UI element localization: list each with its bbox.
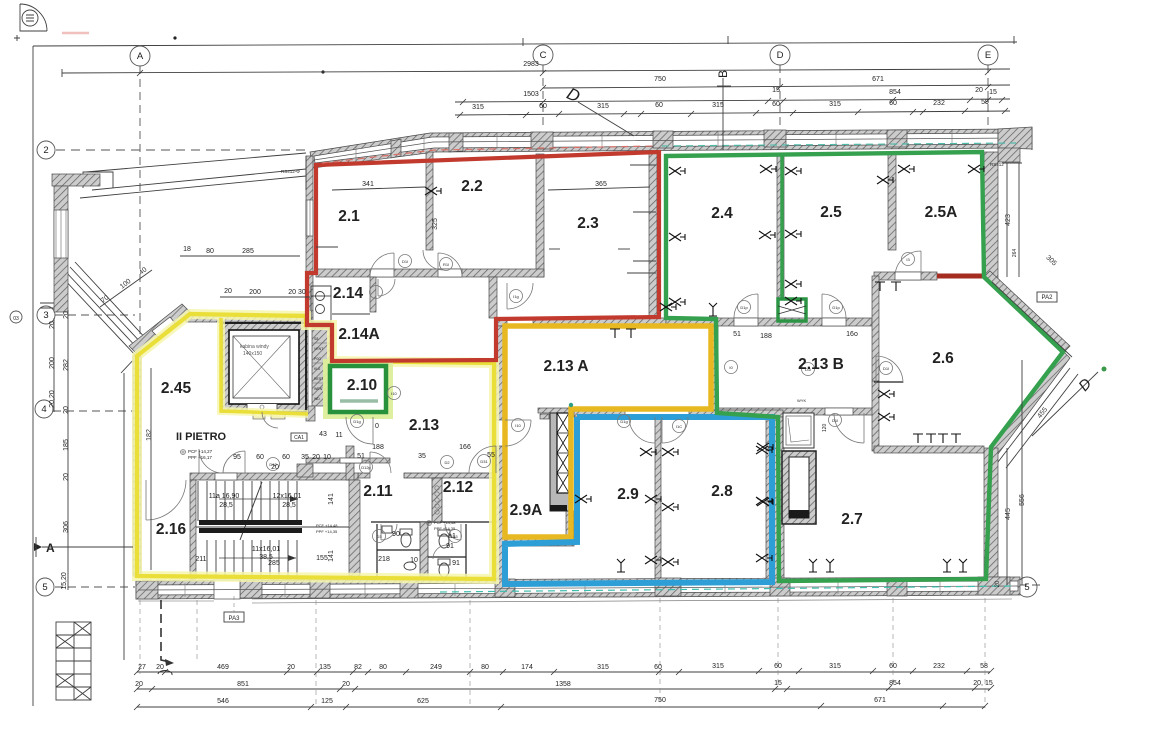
svg-text:15: 15 [774, 680, 782, 687]
svg-text:S8: S8 [314, 337, 318, 341]
svg-text:232: 232 [933, 663, 945, 670]
svg-text:2.45: 2.45 [161, 380, 192, 397]
svg-text:03: 03 [13, 316, 19, 322]
svg-text:60: 60 [539, 103, 547, 110]
svg-text:RS412-Φ: RS412-Φ [281, 169, 300, 174]
svg-text:2.14: 2.14 [333, 285, 364, 302]
svg-text:60: 60 [654, 664, 662, 671]
svg-text:KL0: KL0 [314, 367, 320, 371]
svg-text:D3: D3 [376, 534, 382, 539]
svg-text:2.16: 2.16 [156, 521, 187, 538]
svg-text:11a 16,90: 11a 16,90 [209, 493, 240, 500]
svg-text:18: 18 [183, 246, 191, 253]
svg-text:I10: I10 [515, 423, 521, 428]
svg-text:188: 188 [372, 444, 384, 451]
svg-text:285: 285 [268, 560, 280, 567]
svg-text:D12p: D12p [361, 465, 371, 470]
svg-text:750: 750 [654, 76, 666, 83]
svg-text:188: 188 [760, 333, 772, 340]
svg-text:141: 141 [328, 493, 335, 505]
svg-text:249: 249 [430, 664, 442, 671]
svg-text:60: 60 [282, 454, 290, 461]
svg-text:15: 15 [989, 89, 997, 96]
svg-text:120: 120 [822, 423, 828, 432]
svg-text:VENT: VENT [314, 347, 324, 351]
svg-text:455: 455 [1036, 406, 1049, 420]
svg-text:20 30: 20 30 [288, 289, 306, 296]
svg-text:155: 155 [316, 555, 328, 562]
svg-text:315: 315 [829, 663, 841, 670]
svg-text:40: 40 [138, 266, 149, 276]
svg-text:11: 11 [335, 432, 342, 439]
svg-text:20: 20 [63, 473, 70, 481]
svg-text:I3: I3 [906, 257, 910, 262]
svg-text:3: 3 [43, 310, 48, 321]
svg-text:91: 91 [452, 560, 460, 567]
svg-text:140x150: 140x150 [243, 351, 262, 357]
svg-text:20: 20 [156, 664, 164, 671]
svg-text:20: 20 [287, 664, 295, 671]
svg-text:10: 10 [323, 454, 331, 461]
svg-text:2.13 A: 2.13 A [543, 358, 588, 375]
svg-text:2.10: 2.10 [347, 377, 377, 394]
svg-text:211: 211 [195, 556, 206, 563]
svg-text:556: 556 [1019, 494, 1026, 506]
svg-text:854: 854 [889, 89, 901, 96]
svg-text:11x16,01: 11x16,01 [252, 546, 280, 553]
svg-text:70: 70 [100, 294, 111, 304]
svg-text:125: 125 [321, 698, 333, 705]
svg-text:E: E [985, 50, 991, 61]
svg-text:D2: D2 [444, 460, 450, 465]
svg-text:15: 15 [772, 87, 780, 94]
svg-text:16o: 16o [846, 331, 858, 338]
svg-text:671: 671 [874, 697, 886, 704]
svg-text:35: 35 [301, 454, 309, 461]
svg-text:166: 166 [459, 444, 471, 451]
svg-text:D1g: D1g [353, 419, 360, 424]
svg-text:10: 10 [410, 557, 418, 564]
svg-text:I10: I10 [391, 391, 397, 396]
svg-text:I0: I0 [729, 365, 733, 370]
svg-text:2.2: 2.2 [461, 178, 483, 195]
svg-text:5: 5 [42, 582, 47, 593]
svg-text:80: 80 [481, 664, 489, 671]
svg-text:20: 20 [975, 87, 983, 94]
svg-text:55: 55 [487, 452, 495, 459]
svg-text:750: 750 [654, 697, 666, 704]
svg-text:PCF +14,48: PCF +14,48 [316, 523, 338, 528]
svg-text:546: 546 [217, 698, 229, 705]
svg-text:2.12: 2.12 [443, 479, 473, 496]
svg-text:D31: D31 [480, 459, 488, 464]
svg-text:2.11: 2.11 [363, 483, 393, 500]
svg-text:D1g: D1g [620, 419, 627, 424]
svg-text:PCF +14,27: PCF +14,27 [188, 449, 213, 454]
svg-text:20: 20 [312, 454, 320, 461]
svg-text:854: 854 [889, 680, 901, 687]
svg-text:1358: 1358 [555, 681, 571, 688]
svg-text:135: 135 [319, 664, 331, 671]
svg-text:365: 365 [595, 181, 607, 188]
svg-text:D1p: D1p [740, 305, 748, 310]
svg-text:285: 285 [242, 248, 254, 255]
svg-text:445: 445 [1005, 508, 1012, 520]
svg-text:306: 306 [63, 521, 70, 533]
svg-text:D1l: D1l [402, 259, 408, 264]
svg-text:341: 341 [362, 181, 374, 188]
svg-text:B: B [716, 70, 730, 78]
svg-text:15,20: 15,20 [61, 572, 68, 590]
svg-text:625: 625 [417, 698, 429, 705]
svg-text:kabina windy: kabina windy [240, 344, 269, 350]
svg-text:WYK: WYK [797, 398, 806, 403]
svg-text:174: 174 [521, 664, 533, 671]
svg-text:315: 315 [712, 663, 724, 670]
svg-text:851: 851 [237, 681, 249, 688]
svg-text:59: 59 [981, 99, 989, 106]
svg-text:232: 232 [933, 100, 945, 107]
svg-text:REST: REST [314, 377, 324, 381]
svg-text:2.13 B: 2.13 B [798, 356, 844, 373]
svg-text:0: 0 [375, 423, 379, 430]
svg-text:60: 60 [889, 663, 897, 670]
svg-text:90: 90 [392, 531, 400, 538]
svg-text:2.9A: 2.9A [510, 502, 543, 519]
svg-text:2.1: 2.1 [338, 208, 360, 225]
svg-text:218: 218 [378, 556, 390, 563]
svg-text:PPF +14,35: PPF +14,35 [316, 529, 338, 534]
svg-text:2.9: 2.9 [617, 486, 639, 503]
svg-text:D: D [777, 50, 784, 61]
svg-text:315: 315 [597, 103, 609, 110]
svg-text:282: 282 [63, 359, 70, 371]
svg-text:35: 35 [418, 453, 426, 460]
svg-text:264: 264 [1012, 249, 1018, 258]
svg-text:2.7: 2.7 [841, 511, 863, 528]
svg-text:PCF +14,48: PCF +14,48 [434, 520, 456, 525]
svg-text:2983: 2983 [523, 61, 539, 68]
svg-text:315: 315 [472, 104, 484, 111]
svg-text:325: 325 [432, 218, 439, 230]
svg-text:2.6: 2.6 [932, 350, 954, 367]
svg-text:95: 95 [233, 454, 241, 461]
svg-text:315: 315 [829, 101, 841, 108]
svg-text:D1l: D1l [832, 418, 838, 423]
svg-text:2.8: 2.8 [711, 483, 733, 500]
svg-text:60: 60 [889, 100, 897, 107]
svg-text:43: 43 [319, 431, 327, 438]
svg-text:2.13: 2.13 [409, 417, 440, 434]
svg-text:82: 82 [354, 664, 362, 671]
svg-text:2.3: 2.3 [577, 215, 599, 232]
svg-text:185: 185 [63, 439, 70, 451]
svg-text:2: 2 [43, 145, 48, 156]
svg-text:315: 315 [597, 664, 609, 671]
svg-text:4: 4 [41, 404, 46, 415]
svg-text:I1C: I1C [676, 424, 682, 429]
svg-text:20: 20 [995, 580, 1001, 587]
svg-text:II PIETRO: II PIETRO [176, 431, 227, 443]
svg-text:80: 80 [379, 664, 387, 671]
svg-text:20: 20 [342, 681, 350, 688]
svg-text:A: A [137, 51, 144, 62]
svg-text:PPF +14,35: PPF +14,35 [434, 526, 456, 531]
svg-text:20,20: 20,20 [49, 390, 56, 408]
svg-text:20: 20 [49, 321, 56, 329]
svg-text:12x16,01: 12x16,01 [273, 493, 302, 500]
svg-text:20: 20 [224, 288, 232, 295]
svg-text:5: 5 [1024, 582, 1029, 593]
svg-text:20: 20 [135, 681, 143, 688]
svg-text:200: 200 [249, 289, 261, 296]
svg-text:80: 80 [206, 248, 214, 255]
svg-text:60: 60 [774, 663, 782, 670]
svg-text:PA3: PA3 [229, 616, 241, 622]
svg-text:20: 20 [63, 311, 70, 319]
svg-text:27: 27 [138, 664, 146, 671]
svg-text:91: 91 [446, 543, 454, 550]
svg-text:58: 58 [980, 663, 988, 670]
svg-text:305: 305 [1044, 254, 1057, 267]
svg-text:60: 60 [256, 454, 264, 461]
svg-text:C: C [540, 50, 547, 61]
svg-text:423: 423 [1005, 214, 1012, 226]
svg-text:D1p: D1p [832, 305, 840, 310]
svg-text:I1g: I1g [513, 294, 519, 299]
svg-text:51: 51 [733, 331, 741, 338]
svg-text:28,5: 28,5 [282, 502, 296, 509]
svg-text:D1l: D1l [883, 366, 889, 371]
svg-text:60: 60 [772, 101, 780, 108]
svg-text:469: 469 [217, 664, 229, 671]
svg-text:60: 60 [655, 102, 663, 109]
svg-text:a1: a1 [448, 533, 456, 540]
svg-text:200: 200 [49, 357, 56, 369]
svg-text:2.14A: 2.14A [338, 326, 379, 343]
svg-text:20: 20 [271, 464, 279, 471]
svg-text:R1l: R1l [443, 262, 449, 267]
svg-text:2.5A: 2.5A [925, 204, 958, 221]
svg-text:WD: WD [314, 397, 320, 401]
svg-text:671: 671 [872, 76, 884, 83]
svg-text:182: 182 [146, 429, 153, 441]
svg-text:51: 51 [357, 453, 365, 460]
svg-text:1503: 1503 [523, 91, 539, 98]
svg-text:CA1: CA1 [294, 435, 304, 441]
svg-text:20, 15: 20, 15 [973, 680, 993, 687]
svg-text:A: A [46, 541, 55, 555]
svg-text:141: 141 [328, 550, 335, 562]
svg-text:2.4: 2.4 [711, 205, 733, 222]
svg-text:2.5: 2.5 [820, 204, 842, 221]
svg-text:28,5: 28,5 [219, 502, 233, 509]
svg-text:20: 20 [63, 406, 70, 414]
svg-text:315: 315 [712, 102, 724, 109]
svg-text:PPF +16,17: PPF +16,17 [188, 455, 212, 460]
svg-text:PA2: PA2 [1042, 295, 1054, 301]
svg-text:P0G: P0G [314, 357, 321, 361]
